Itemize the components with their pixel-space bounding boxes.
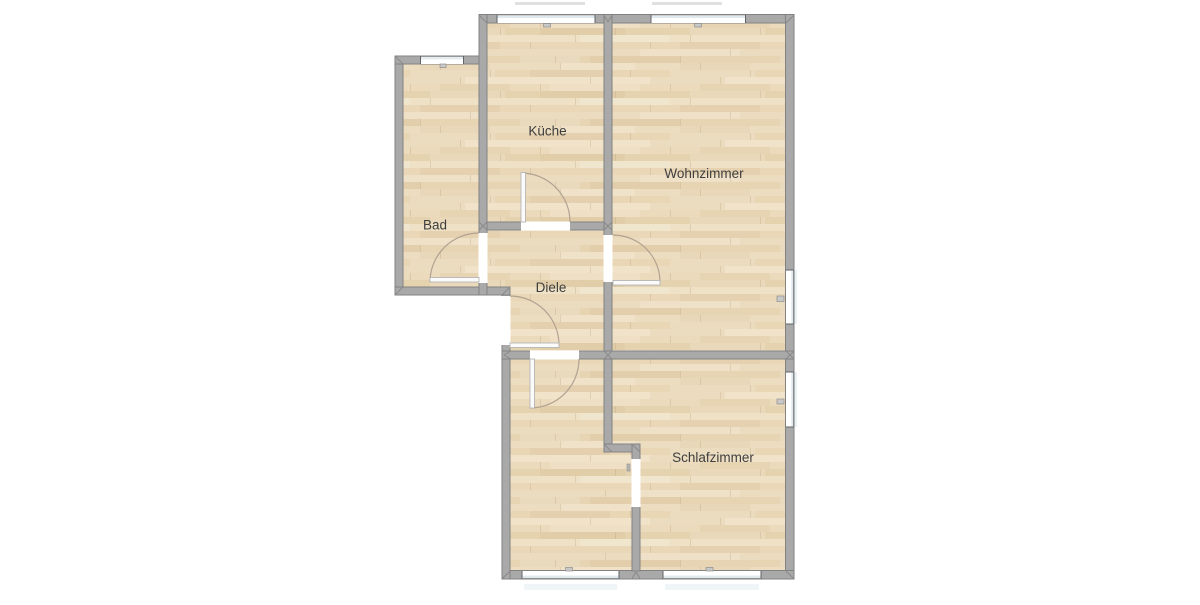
svg-text:Bad: Bad — [423, 218, 447, 233]
svg-text:Diele: Diele — [536, 280, 567, 295]
svg-text:Wohnzimmer: Wohnzimmer — [664, 166, 744, 181]
svg-text:Schlafzimmer: Schlafzimmer — [672, 450, 754, 465]
svg-text:Küche: Küche — [528, 124, 566, 139]
